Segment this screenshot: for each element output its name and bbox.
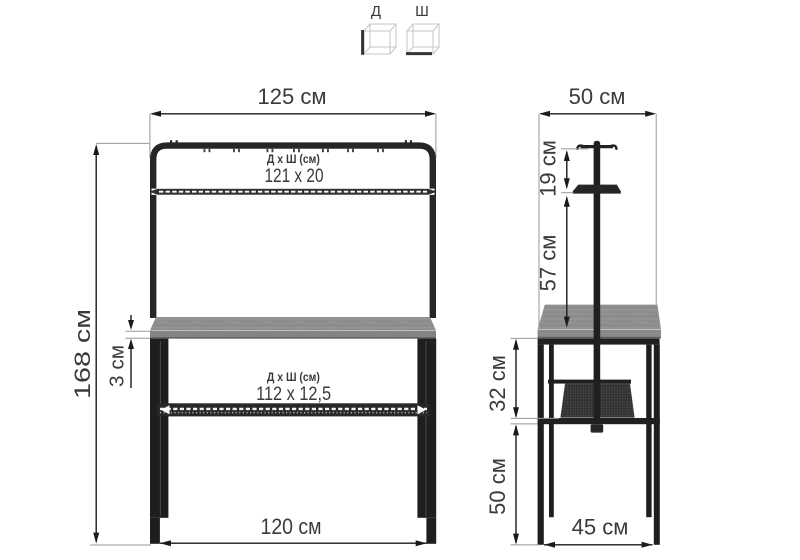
svg-text:3 см: 3 см [107, 345, 129, 387]
svg-text:45 см: 45 см [572, 515, 629, 540]
svg-text:Д: Д [371, 3, 381, 20]
svg-text:168 см: 168 см [70, 309, 95, 399]
svg-text:121 x 20: 121 x 20 [265, 165, 324, 187]
svg-text:32 см: 32 см [485, 355, 510, 412]
svg-text:112 x 12,5: 112 x 12,5 [256, 383, 331, 405]
svg-text:125 см: 125 см [258, 84, 327, 109]
svg-text:50 см: 50 см [569, 84, 626, 109]
svg-text:50 см: 50 см [485, 458, 510, 515]
svg-text:120 см: 120 см [261, 514, 322, 539]
svg-text:Ш: Ш [415, 3, 429, 20]
svg-text:19 см: 19 см [536, 140, 561, 197]
svg-text:57 см: 57 см [536, 235, 561, 292]
